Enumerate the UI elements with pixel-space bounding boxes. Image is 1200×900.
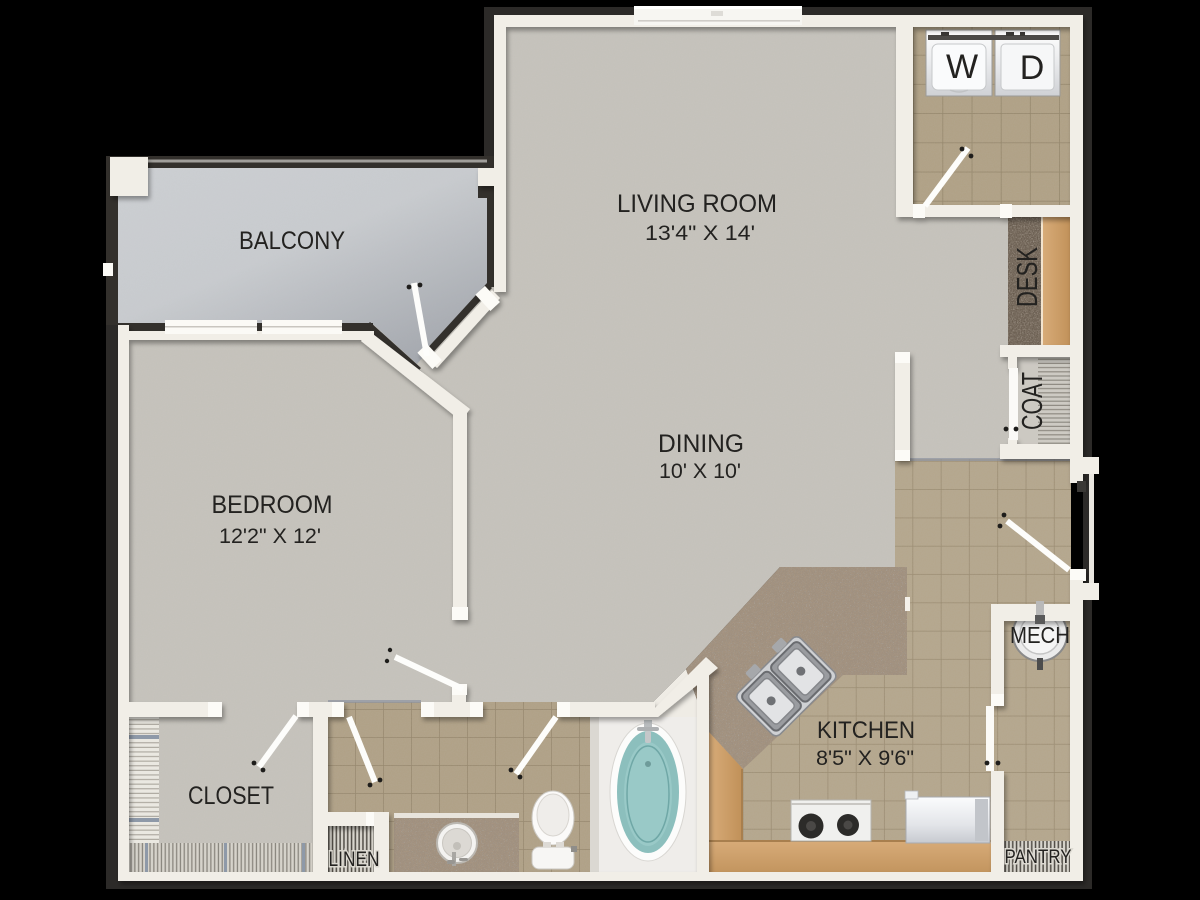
- svg-text:13'4" X 14': 13'4" X 14': [645, 221, 755, 245]
- svg-text:COAT: COAT: [1017, 372, 1049, 430]
- svg-text:LINEN: LINEN: [329, 848, 380, 871]
- svg-text:MECH: MECH: [1010, 622, 1070, 648]
- svg-text:KITCHEN: KITCHEN: [817, 717, 915, 744]
- svg-text:DINING: DINING: [658, 430, 744, 458]
- svg-text:CLOSET: CLOSET: [188, 782, 274, 810]
- svg-text:8'5" X 9'6": 8'5" X 9'6": [816, 746, 914, 770]
- svg-text:BALCONY: BALCONY: [239, 227, 345, 255]
- svg-text:W: W: [946, 48, 978, 86]
- svg-text:DESK: DESK: [1012, 247, 1044, 307]
- svg-text:D: D: [1020, 49, 1045, 87]
- svg-text:LIVING ROOM: LIVING ROOM: [617, 190, 777, 218]
- svg-text:BEDROOM: BEDROOM: [212, 491, 333, 519]
- svg-text:12'2" X 12': 12'2" X 12': [219, 524, 321, 548]
- svg-text:PANTRY: PANTRY: [1005, 847, 1072, 868]
- svg-text:10' X 10': 10' X 10': [659, 459, 741, 483]
